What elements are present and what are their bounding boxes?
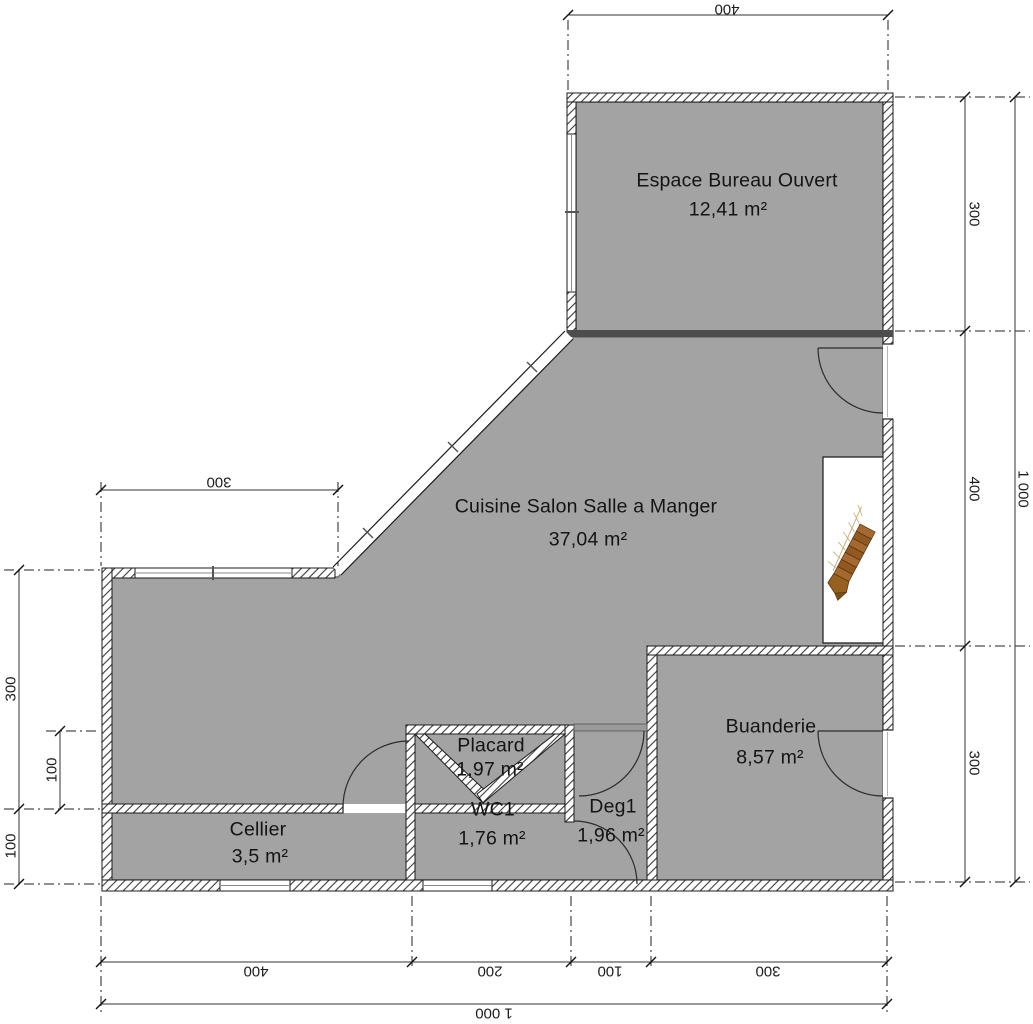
room-label-deg1: Deg1 bbox=[589, 796, 636, 819]
dim-bottom-1: 400 bbox=[243, 963, 268, 980]
room-area-cuisine: 37,04 m² bbox=[549, 529, 628, 552]
dim-bottom-total: 1 000 bbox=[475, 1005, 513, 1022]
dim-left-inner: 100 bbox=[44, 757, 61, 782]
room-label-buanderie: Buanderie bbox=[726, 716, 817, 739]
wall-office-left-b bbox=[567, 292, 576, 332]
dim-right-total: 1 000 bbox=[1015, 470, 1032, 508]
window-wc-bottom bbox=[423, 880, 492, 891]
room-area-espace-bureau: 12,41 m² bbox=[689, 199, 768, 222]
wall-buanderie-left bbox=[647, 646, 657, 880]
wall-buanderie-top bbox=[647, 646, 893, 655]
window-cellier-bottom bbox=[220, 880, 290, 891]
dim-right-lower: 300 bbox=[966, 750, 983, 775]
room-label-placard: Placard bbox=[457, 735, 525, 758]
dim-bottom-4: 300 bbox=[755, 963, 780, 980]
wall-wc-deg-separator bbox=[565, 725, 574, 822]
dim-left-lower: 100 bbox=[3, 833, 20, 858]
wall-right-a bbox=[883, 102, 893, 344]
room-label-cuisine: Cuisine Salon Salle a Manger bbox=[455, 496, 718, 519]
dim-left-upper: 300 bbox=[3, 676, 20, 701]
wall-left bbox=[102, 568, 112, 891]
wall-placard-left bbox=[406, 725, 415, 880]
deg1-opening-header bbox=[574, 724, 647, 731]
dim-bottom-2: 200 bbox=[477, 963, 502, 980]
room-label-wc1: WC1 bbox=[471, 799, 515, 822]
room-area-buanderie: 8,57 m² bbox=[736, 747, 804, 770]
dim-top-width: 400 bbox=[714, 1, 739, 18]
floor-plan-page: Espace Bureau Ouvert 12,41 m² Cuisine Sa… bbox=[0, 0, 1033, 1024]
dim-right-upper: 300 bbox=[966, 201, 983, 226]
wall-placard-top bbox=[406, 725, 574, 734]
wall-right-c bbox=[883, 798, 893, 880]
dim-bottom-3: 100 bbox=[597, 963, 622, 980]
room-area-deg1: 1,96 m² bbox=[577, 825, 645, 848]
wall-right-b bbox=[883, 419, 893, 730]
wall-wing-top-b bbox=[292, 568, 335, 578]
room-area-wc1: 1,76 m² bbox=[458, 828, 526, 851]
room-label-espace-bureau: Espace Bureau Ouvert bbox=[636, 170, 837, 193]
room-label-cellier: Cellier bbox=[230, 819, 287, 842]
window-wing-top bbox=[135, 566, 292, 580]
room-separator-line bbox=[567, 330, 893, 337]
dim-right-middle: 400 bbox=[966, 476, 983, 501]
wall-office-left-a bbox=[567, 102, 576, 134]
wall-cellier-top bbox=[102, 804, 343, 813]
room-area-placard: 1,97 m² bbox=[456, 759, 524, 782]
room-area-cellier: 3,5 m² bbox=[232, 846, 288, 869]
wall-office-top bbox=[567, 93, 893, 102]
dim-wing-top-width: 300 bbox=[206, 474, 231, 491]
